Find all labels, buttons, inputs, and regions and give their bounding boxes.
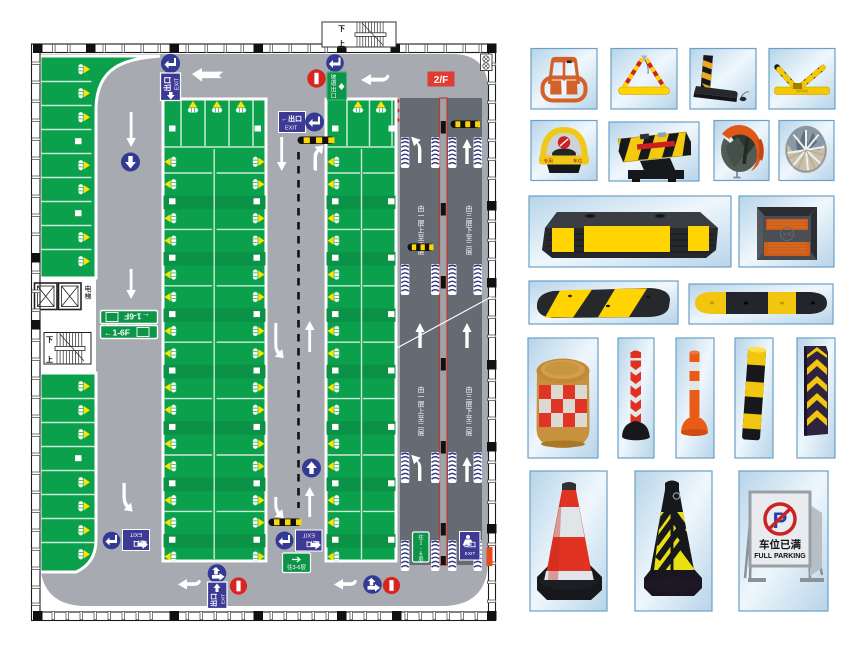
svg-text:EXIT: EXIT xyxy=(175,77,181,90)
svg-text:上: 上 xyxy=(418,407,425,416)
svg-text:口: 口 xyxy=(331,92,337,99)
svg-text:三: 三 xyxy=(466,212,473,220)
svg-text:层: 层 xyxy=(466,429,473,437)
svg-text:二: 二 xyxy=(466,242,473,249)
svg-text:层: 层 xyxy=(418,429,425,437)
svg-text:梯: 梯 xyxy=(85,291,92,300)
svg-text:至: 至 xyxy=(418,234,425,242)
svg-text:至: 至 xyxy=(418,415,425,423)
svg-text:车位已满: 车位已满 xyxy=(759,538,801,551)
svg-text:EXIT: EXIT xyxy=(302,532,315,538)
svg-text:道: 道 xyxy=(331,79,337,87)
svg-text:上: 上 xyxy=(338,39,345,48)
svg-text:出口: 出口 xyxy=(464,541,476,549)
svg-text:←出口: ←出口 xyxy=(281,114,302,123)
svg-text:FULL PARKING: FULL PARKING xyxy=(754,553,806,560)
svg-text:由: 由 xyxy=(418,204,425,213)
svg-text:层: 层 xyxy=(418,400,425,408)
svg-text:←1-6F: ←1-6F xyxy=(104,328,130,338)
svg-text:车位: 车位 xyxy=(573,158,583,165)
svg-text:一: 一 xyxy=(418,394,425,401)
svg-text:下: 下 xyxy=(466,408,473,416)
svg-text:三: 三 xyxy=(466,393,473,401)
svg-text:层: 层 xyxy=(418,219,425,227)
svg-text:坡: 坡 xyxy=(331,73,337,81)
svg-text:往3-6层: 往3-6层 xyxy=(287,563,306,571)
svg-text:二: 二 xyxy=(466,423,473,430)
svg-text:上: 上 xyxy=(46,355,53,364)
svg-text:由: 由 xyxy=(466,385,473,394)
svg-text:EXIT: EXIT xyxy=(465,551,476,557)
svg-text:层: 层 xyxy=(466,248,473,256)
svg-text:至: 至 xyxy=(466,415,473,423)
svg-text:一: 一 xyxy=(418,213,425,220)
svg-text:专用: 专用 xyxy=(544,158,554,165)
svg-text:出: 出 xyxy=(331,85,337,93)
svg-text:下: 下 xyxy=(466,227,473,235)
svg-text:由: 由 xyxy=(466,204,473,213)
svg-text:EXIT: EXIT xyxy=(285,126,298,132)
svg-text:出口: 出口 xyxy=(162,77,172,92)
svg-text:层: 层 xyxy=(466,400,473,408)
svg-text:2/F: 2/F xyxy=(434,75,448,86)
svg-text:电: 电 xyxy=(85,284,92,293)
svg-text:EXIT: EXIT xyxy=(221,594,226,604)
svg-text:←1-6F: ←1-6F xyxy=(124,312,150,322)
svg-text:下: 下 xyxy=(338,25,345,33)
svg-text:出口: 出口 xyxy=(209,593,218,607)
svg-text:下: 下 xyxy=(46,336,53,344)
svg-text:层: 层 xyxy=(466,219,473,227)
svg-text:EXIT: EXIT xyxy=(129,531,142,537)
svg-text:至: 至 xyxy=(466,234,473,242)
svg-text:上: 上 xyxy=(418,226,425,235)
svg-text:由: 由 xyxy=(418,385,425,394)
svg-text:层: 层 xyxy=(418,556,423,563)
svg-text:二: 二 xyxy=(418,423,425,430)
